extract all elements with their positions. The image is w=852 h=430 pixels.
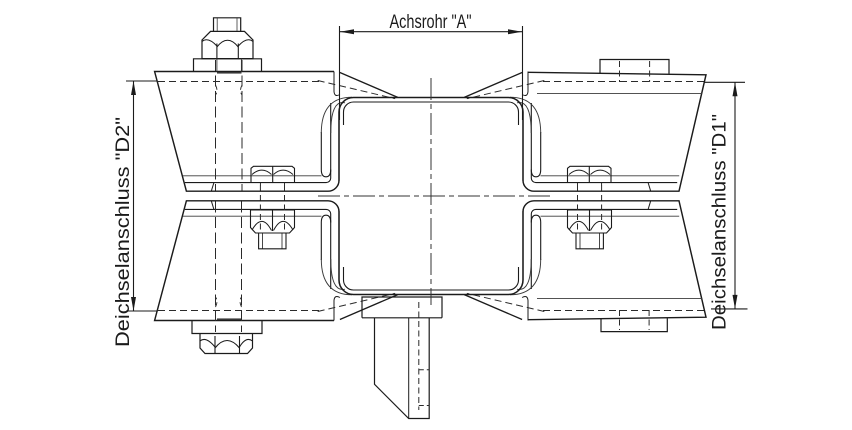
svg-text:Achsrohr "A": Achsrohr "A" <box>390 12 472 33</box>
svg-text:Deichselanschluss "D2": Deichselanschluss "D2" <box>113 117 134 347</box>
svg-text:Deichselanschluss "D1": Deichselanschluss "D1" <box>710 114 731 330</box>
